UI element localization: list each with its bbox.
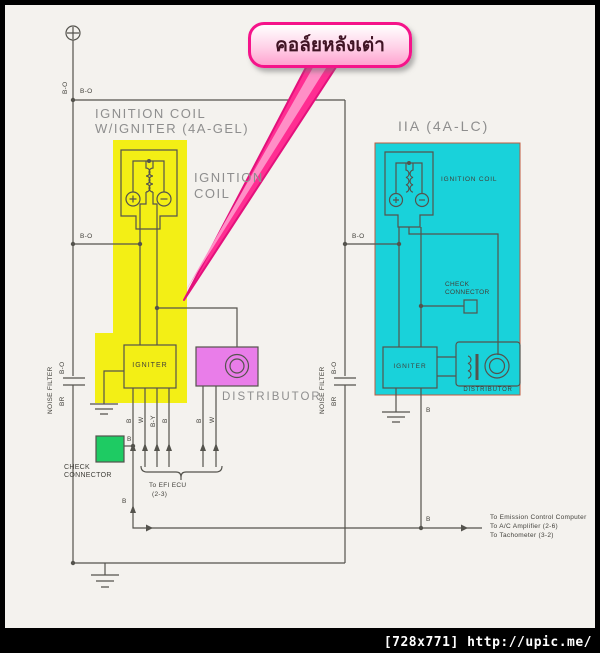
screenshot-frame: คอล์ยหลังเต่า IGNITION COIL W/IGNITER (4… <box>0 0 600 653</box>
destination-line1: To Emission Control Computer <box>490 514 587 521</box>
ecu-brace <box>141 466 222 480</box>
left-section-title-line1: IGNITION COIL <box>95 106 206 121</box>
wire-label-dist1-b: B <box>196 403 203 423</box>
wire-label-igniter4-b: B <box>162 403 169 423</box>
wire-label-br-left-filter: BR <box>59 390 66 406</box>
callout-text: คอล์ยหลังเต่า <box>275 30 385 60</box>
ground-symbol-bottom <box>91 563 119 587</box>
left-check-connector-label-line1: CHECK <box>64 464 90 471</box>
right-check-connector-label-line1: CHECK <box>445 281 469 288</box>
right-distributor-label: DISTRIBUTOR <box>456 387 520 393</box>
wire-label-right-igniter-b: B <box>426 407 431 414</box>
left-igniter-label: IGNITER <box>124 362 176 369</box>
wire-label-bo-right-feed: B-O <box>352 233 364 240</box>
callout-bubble: คอล์ยหลังเต่า <box>248 22 412 68</box>
footer-url-text: [728x771] http://upic.me/ <box>384 635 592 650</box>
wire-label-dist2-w: W <box>209 403 216 423</box>
right-check-connector-label-line2: CONNECTOR <box>445 289 489 296</box>
right-section-title: IIA (4A-LC) <box>398 118 489 134</box>
wire-label-bo-left-feed: B-O <box>80 233 92 240</box>
wire-label-bo-battery: B-O <box>62 70 69 94</box>
ecu-note-line1: To EFI ECU <box>149 482 186 489</box>
wire-label-bo-top: B-O <box>80 88 92 95</box>
wire-label-igniter3-by: B-Y <box>150 403 157 427</box>
ecu-note-line2: (2-3) <box>152 491 167 498</box>
right-igniter-label: IGNITER <box>383 363 437 370</box>
right-noise-filter-label: NOISE FILTER <box>319 350 326 414</box>
distributor-box-left <box>196 347 258 386</box>
wire-label-bo-right-filter: B-O <box>331 352 338 374</box>
check-connector-box-left <box>96 436 124 462</box>
wiring-diagram <box>0 0 600 653</box>
right-ignition-coil-label: IGNITION COIL <box>441 176 497 183</box>
wire-label-check-b: B <box>127 436 132 443</box>
wire-label-igniter2-w: W <box>138 403 145 423</box>
left-ignition-coil-label-line2: COIL <box>194 186 230 201</box>
left-section-title-line2: W/IGNITER (4A-GEL) <box>95 121 249 136</box>
wire-label-bo-left-filter: B-O <box>59 352 66 374</box>
left-noise-filter-label: NOISE FILTER <box>47 350 54 414</box>
wire-label-bottom-left-b: B <box>122 498 127 505</box>
left-check-connector-label-line2: CONNECTOR <box>64 472 112 479</box>
wire-label-br-right-filter: BR <box>331 390 338 406</box>
wire-label-igniter1-b: B <box>126 403 133 423</box>
left-distributor-label: DISTRIBUTOR <box>222 391 322 403</box>
battery-positive-icon <box>66 26 80 40</box>
wire-label-bottom-right-b: B <box>426 516 431 523</box>
destination-line2: To A/C Amplifier (2-6) <box>490 523 558 530</box>
destination-line3: To Tachometer (3-2) <box>490 532 554 539</box>
left-ignition-coil-label-line1: IGNITION <box>194 170 264 185</box>
